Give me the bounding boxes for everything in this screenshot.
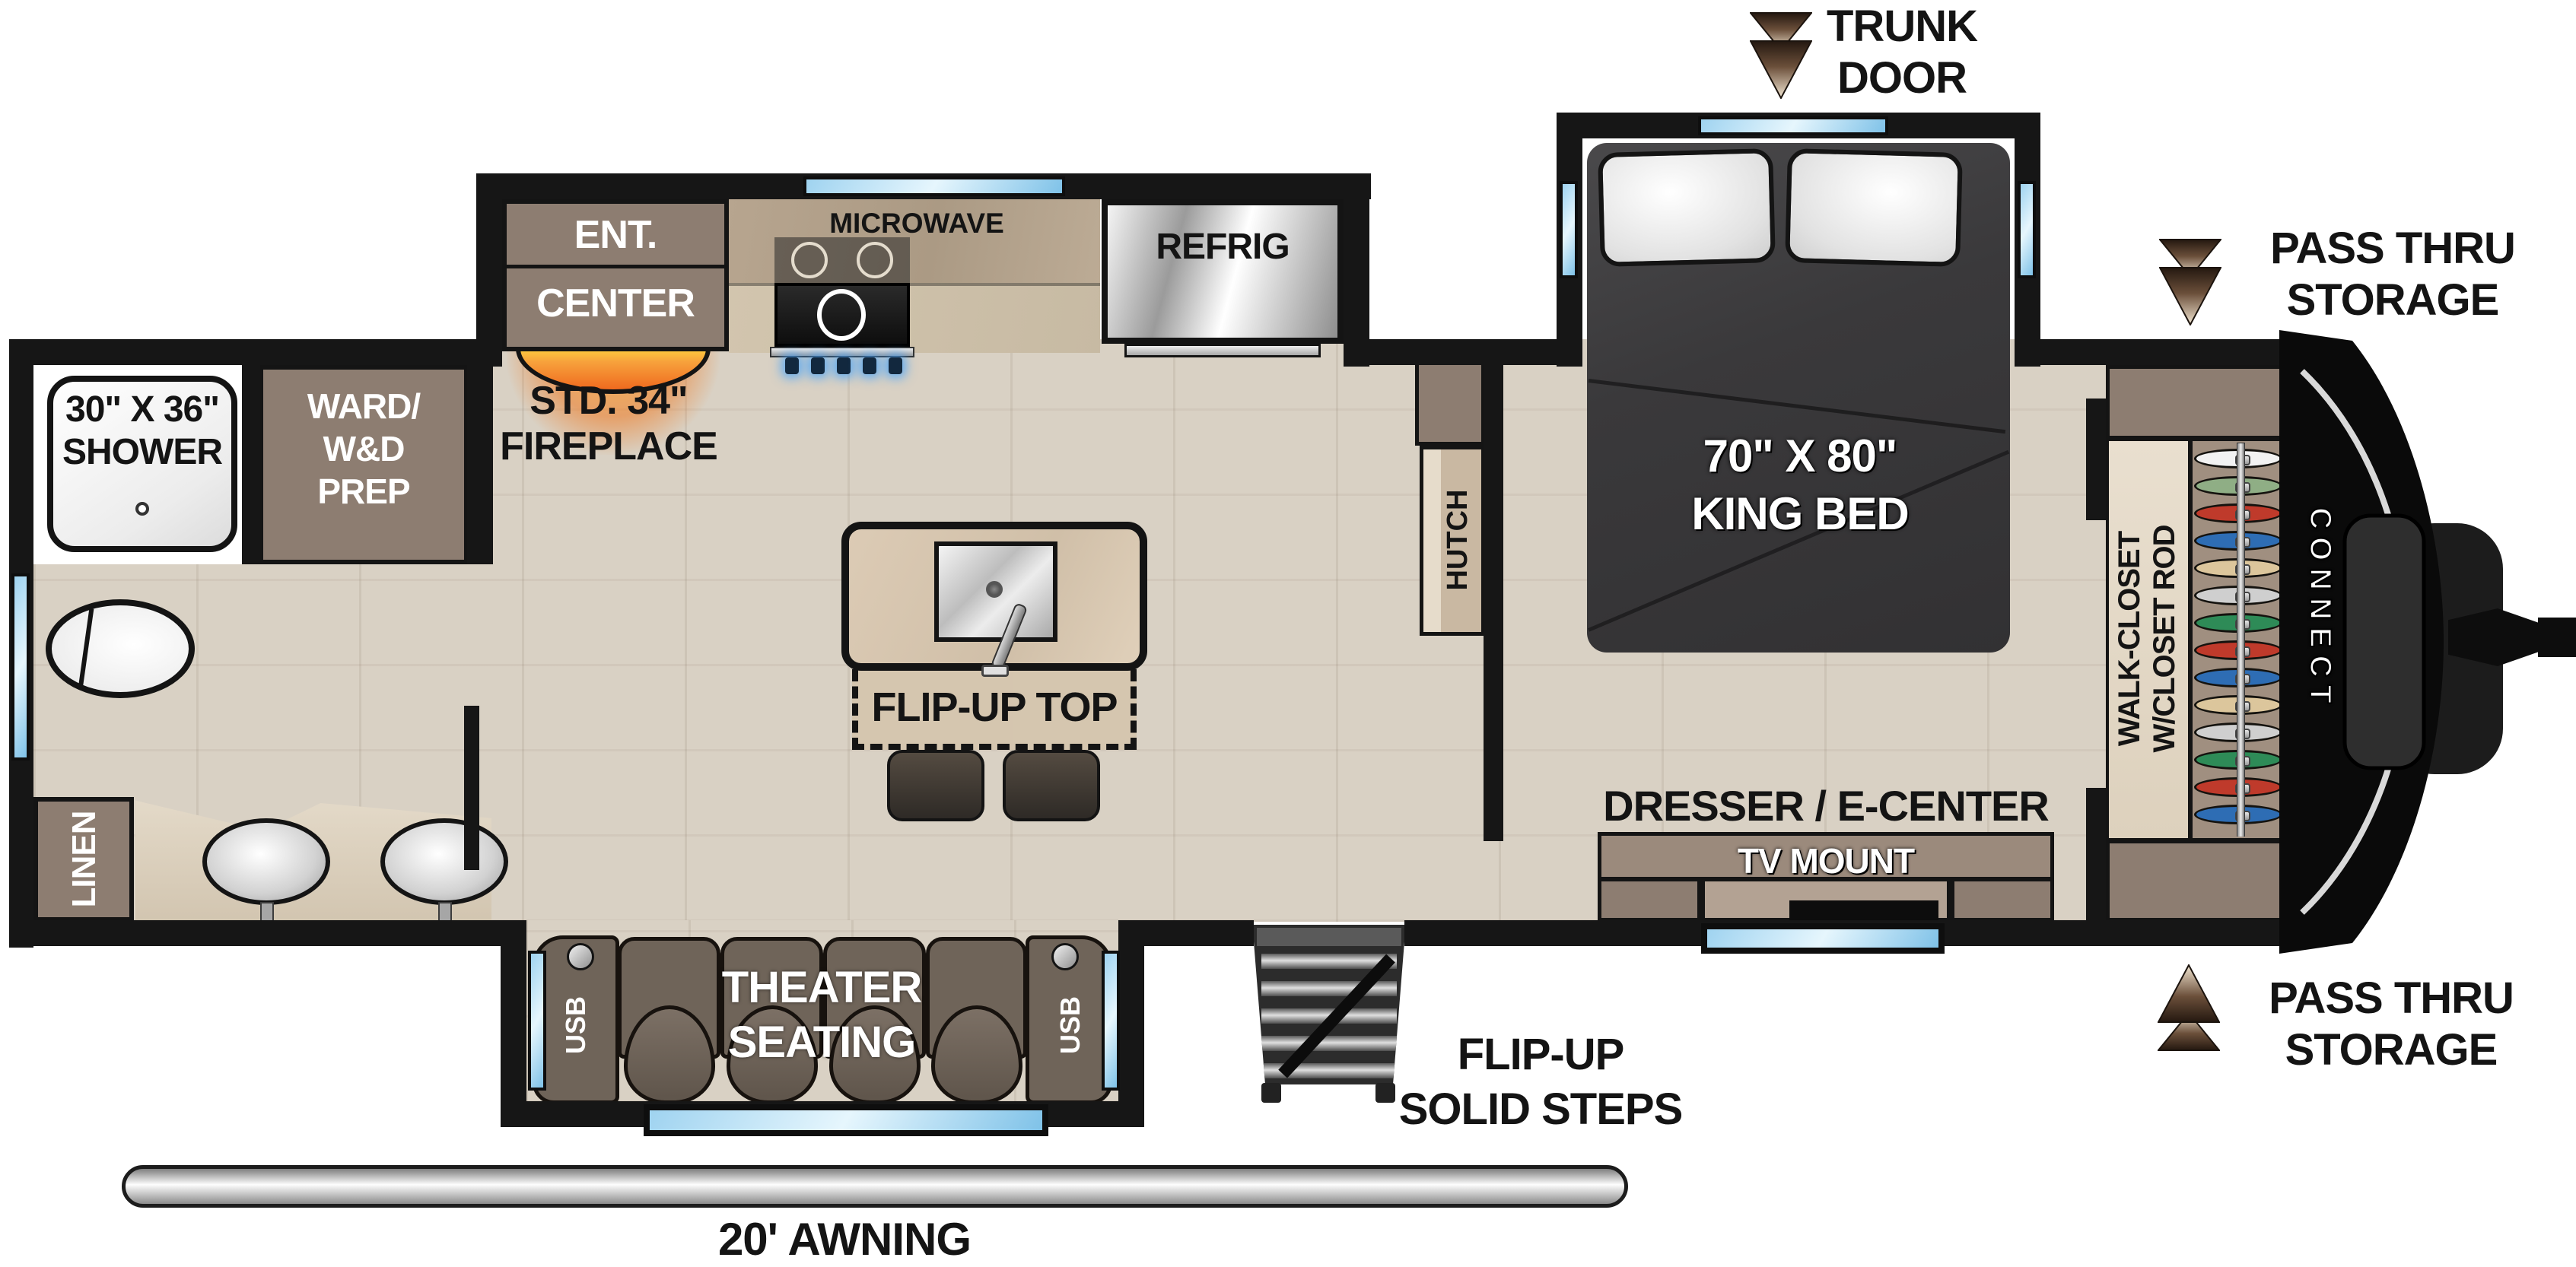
refrigerator-vent (1124, 344, 1321, 357)
sink-drain (986, 581, 1003, 598)
wall-top-front (2039, 339, 2290, 365)
usb-label-right: USB (1056, 980, 1083, 1071)
walk-closet-label: WALK-CLOSET W/CLOSET ROD (2112, 437, 2185, 840)
vanity-sink (380, 818, 508, 905)
flip-up-top-label: FLIP-UP TOP (831, 686, 1158, 729)
hutch-upper-cabinet (1415, 353, 1485, 446)
pillow (1785, 148, 1963, 267)
trunk-door-label-1: TRUNK (1818, 3, 1986, 49)
window-theater-right (1102, 951, 1120, 1091)
wall-bath-divider (242, 365, 260, 564)
dresser-label: DRESSER / E-CENTER (1582, 783, 2069, 828)
king-bed-label-type: KING BED (1602, 490, 1998, 538)
brand-logo: CONNECT (2301, 449, 2336, 769)
wall-top-gap (1369, 339, 1560, 365)
window-theater-left (528, 951, 546, 1091)
linen-label: LINEN (67, 799, 100, 920)
awning-label: 20' AWNING (639, 1215, 1050, 1264)
shower-label-size: 30" X 36" (44, 391, 240, 430)
stool (1003, 750, 1100, 821)
hitch-tip (2538, 618, 2576, 657)
range-handle (770, 347, 914, 357)
closet-lower-cabinet (2106, 840, 2285, 922)
king-bed-label-size: 70" X 80" (1602, 432, 1998, 481)
walk-closet-label-line1: WALK-CLOSET (2112, 437, 2147, 840)
wall-bottom-rear (9, 920, 513, 946)
fireplace-label-2: FIREPLACE (479, 426, 738, 468)
dresser-wing-right (1951, 878, 2054, 922)
theater-label-2: SEATING (631, 1019, 1012, 1065)
tv (1789, 900, 1938, 922)
usb-label-left: USB (561, 980, 589, 1071)
awning-bar (122, 1165, 1628, 1208)
wall-kitchen-slide-right (1344, 173, 1369, 367)
window-kitchen (803, 176, 1065, 196)
microwave-label: MICROWAVE (791, 208, 1042, 238)
island-faucet-base (981, 665, 1009, 677)
steps-label-2: SOLID STEPS (1362, 1086, 1719, 1132)
wall-bottom-mid (1143, 920, 1254, 946)
burner (791, 242, 828, 278)
ward-label-3: PREP (265, 473, 463, 510)
pass-thru-top-label-1: PASS THRU (2229, 225, 2556, 271)
pass-thru-top-arrow-icon (2159, 239, 2221, 325)
wall-top-rear (9, 339, 496, 365)
ent-label-2: CENTER (505, 283, 726, 325)
hutch-label: HUTCH (1442, 449, 1473, 631)
closet-rod (2237, 443, 2245, 837)
walk-closet-label-line2: W/CLOSET ROD (2147, 437, 2182, 840)
trunk-door-arrow-icon (1750, 12, 1812, 99)
step-tread (1261, 981, 1397, 996)
window-bedroom-top (1698, 116, 1888, 135)
pass-thru-top-label-2: STORAGE (2229, 277, 2556, 323)
steps-label-1: FLIP-UP (1362, 1031, 1719, 1078)
wall-closet-stub-a (2086, 399, 2106, 520)
wall-theater-slide-right (1118, 920, 1144, 1127)
pass-thru-bottom-arrow-icon (2158, 964, 2220, 1051)
pass-thru-bottom-label-1: PASS THRU (2228, 975, 2555, 1021)
shower-drain (135, 502, 149, 516)
window-under-tv (1701, 923, 1945, 954)
cupholder (567, 943, 594, 970)
ward-label-2: W&D (265, 430, 463, 468)
window-bedroom-left (1560, 181, 1578, 278)
tv-mount-label: TV MOUNT (1689, 843, 1963, 880)
wall-kitchen-slide-left (476, 173, 502, 367)
step-landing (1257, 928, 1401, 946)
refrig-label: REFRIG (1105, 228, 1340, 267)
step-foot (1261, 1083, 1281, 1103)
wall-bath-partition (464, 706, 479, 870)
range-knob (837, 357, 851, 374)
window-rear-left (11, 573, 30, 761)
ward-label-1: WARD/ (265, 388, 463, 425)
window-bedroom-right (2018, 181, 2036, 278)
vanity-sink (202, 818, 330, 905)
window-theater-bottom (644, 1104, 1048, 1136)
dresser-wing-left (1598, 878, 1701, 922)
toilet (46, 599, 195, 698)
oven-door-ring (817, 289, 866, 341)
range-knob (863, 357, 876, 374)
hitch-coupler (2448, 608, 2547, 666)
cupholder (1051, 943, 1079, 970)
stool (887, 750, 984, 821)
shower-label: SHOWER (44, 433, 240, 472)
pass-thru-bottom-label-2: STORAGE (2228, 1027, 2555, 1073)
range-knob (811, 357, 825, 374)
ent-label-1: ENT. (505, 214, 726, 256)
wall-closet-stub-b (2086, 788, 2106, 922)
wall-theater-slide-left (501, 920, 526, 1127)
burner (857, 242, 893, 278)
wall-bedroom-partition (1484, 339, 1503, 841)
floor-plan: 70" X 80" KING BED 30" X 36" SHOWER WARD… (0, 0, 2576, 1267)
fireplace-label-1: STD. 34" (479, 380, 738, 422)
refrigerator (1102, 199, 1344, 344)
pillow (1598, 148, 1776, 267)
closet-upper-cabinet (2106, 365, 2285, 440)
range-knob (785, 357, 799, 374)
trunk-door-label-2: DOOR (1818, 55, 1986, 101)
ent-center-divider (507, 265, 724, 268)
theater-label-1: THEATER (631, 964, 1012, 1011)
closet-rod-hangers (2193, 443, 2284, 837)
range-knob (889, 357, 902, 374)
